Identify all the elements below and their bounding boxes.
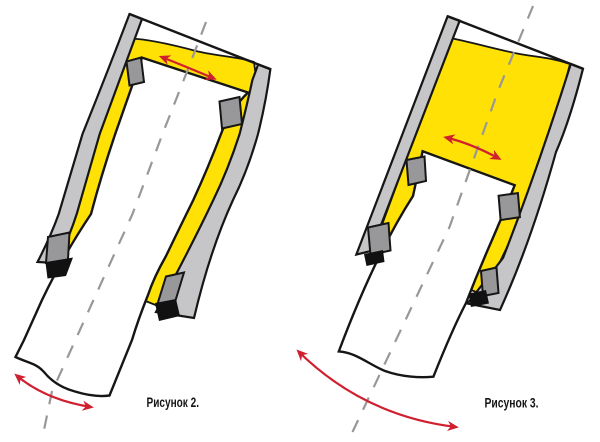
svg-text:Рисунок 2.: Рисунок 2. [147, 394, 200, 410]
svg-text:Рисунок 3.: Рисунок 3. [485, 395, 539, 411]
